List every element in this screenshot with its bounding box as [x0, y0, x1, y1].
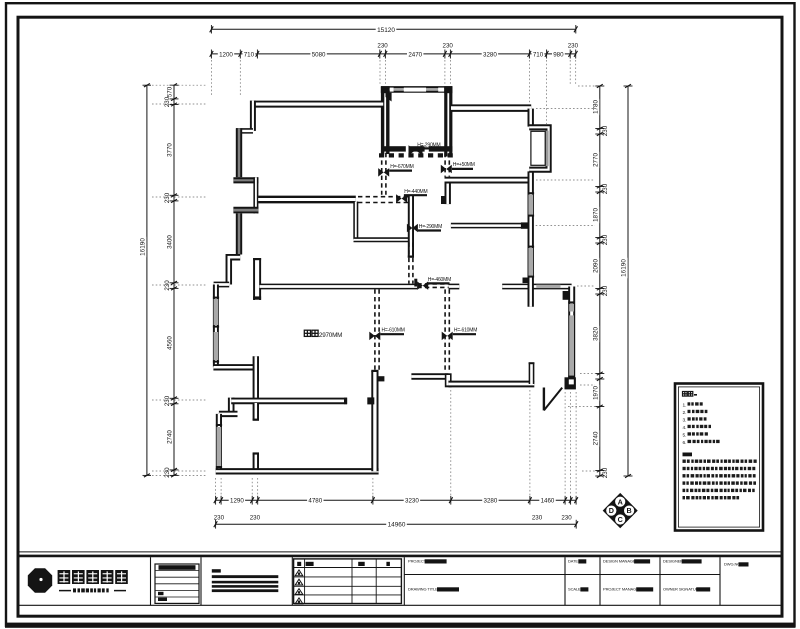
svg-text:3230: 3230 — [405, 498, 419, 505]
svg-text:2970MM: 2970MM — [319, 332, 342, 339]
svg-text:1460: 1460 — [541, 498, 555, 505]
svg-text:DESIGN MANAGER: DESIGN MANAGER — [603, 559, 638, 564]
svg-text:1.: 1. — [683, 403, 687, 409]
svg-text:PROJECT MANAGER: PROJECT MANAGER — [603, 587, 642, 592]
svg-text:16190: 16190 — [140, 238, 147, 256]
svg-text:3400: 3400 — [167, 235, 174, 249]
svg-text:230: 230 — [164, 96, 171, 107]
svg-text:570: 570 — [167, 86, 174, 97]
svg-text:230: 230 — [568, 42, 579, 49]
svg-text:H=-670MM: H=-670MM — [390, 164, 413, 170]
svg-text:2090: 2090 — [592, 259, 599, 273]
svg-text:H=-440MM: H=-440MM — [404, 189, 427, 195]
svg-text:230: 230 — [377, 42, 388, 49]
svg-text:2770: 2770 — [592, 153, 599, 167]
svg-text:2.: 2. — [683, 410, 687, 416]
svg-text:230: 230 — [602, 285, 609, 296]
svg-text:14960: 14960 — [388, 522, 406, 529]
svg-text:230: 230 — [602, 125, 609, 136]
svg-text:230: 230 — [164, 467, 171, 478]
svg-text:1200: 1200 — [219, 51, 233, 58]
svg-text:D: D — [609, 506, 614, 515]
svg-text:2470: 2470 — [408, 51, 422, 58]
svg-text:3770: 3770 — [167, 143, 174, 157]
svg-text:230: 230 — [250, 515, 261, 522]
svg-text:DWG.NO: DWG.NO — [724, 562, 740, 567]
svg-text:DESIGNER: DESIGNER — [663, 559, 683, 564]
svg-text:16190: 16190 — [621, 259, 628, 277]
svg-text:6.: 6. — [683, 440, 687, 446]
svg-text:230: 230 — [602, 183, 609, 194]
svg-text:1780: 1780 — [592, 100, 599, 114]
svg-text:230: 230 — [561, 515, 572, 522]
svg-text:2740: 2740 — [592, 431, 599, 445]
svg-text:3280: 3280 — [484, 498, 498, 505]
svg-text:H=-290MM: H=-290MM — [419, 224, 442, 230]
svg-text:710: 710 — [533, 51, 544, 58]
svg-text:1290: 1290 — [230, 498, 244, 505]
svg-text:710: 710 — [244, 51, 255, 58]
svg-text:5.: 5. — [683, 433, 687, 439]
svg-text:OWNER SIGNATURE: OWNER SIGNATURE — [663, 587, 701, 592]
svg-text:PROJECT: PROJECT — [408, 559, 427, 564]
svg-text:A: A — [618, 497, 623, 506]
svg-text:B: B — [626, 506, 631, 515]
svg-text:230: 230 — [164, 395, 171, 406]
svg-text:230: 230 — [532, 515, 543, 522]
svg-text:230: 230 — [602, 467, 609, 478]
svg-text:3.: 3. — [683, 418, 687, 424]
svg-text:3280: 3280 — [483, 51, 497, 58]
svg-text:15120: 15120 — [377, 27, 395, 34]
svg-text:230: 230 — [164, 192, 171, 203]
svg-text:230: 230 — [602, 234, 609, 245]
svg-text:4780: 4780 — [308, 498, 322, 505]
svg-text:5080: 5080 — [312, 51, 326, 58]
svg-text:H=-610MM: H=-610MM — [382, 328, 405, 334]
svg-text:3820: 3820 — [592, 327, 599, 341]
svg-text:980: 980 — [553, 51, 564, 58]
svg-text:4.: 4. — [683, 425, 687, 431]
svg-text:DATE: DATE — [568, 559, 578, 564]
svg-text:H=+50MM: H=+50MM — [453, 162, 475, 168]
svg-text:4560: 4560 — [167, 336, 174, 350]
svg-text:2740: 2740 — [167, 430, 174, 444]
svg-text:DRAWING TITLE: DRAWING TITLE — [408, 587, 438, 592]
svg-text:1870: 1870 — [592, 208, 599, 222]
svg-text:C: C — [618, 515, 623, 524]
svg-text:230: 230 — [443, 42, 454, 49]
svg-text:H=-610MM: H=-610MM — [454, 328, 477, 334]
svg-text:1970: 1970 — [592, 386, 599, 400]
svg-text:SCALE: SCALE — [568, 587, 581, 592]
